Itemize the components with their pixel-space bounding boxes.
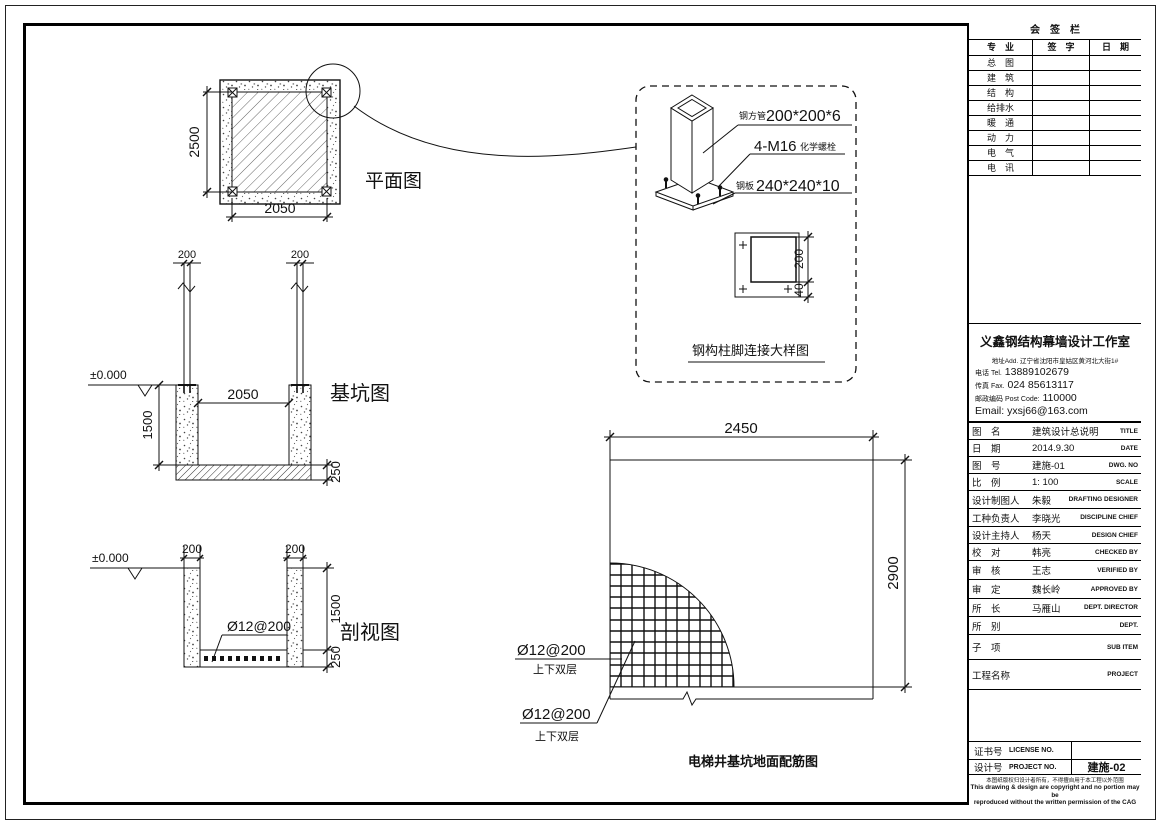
field-label: 审 定 [972,582,1028,596]
plate-plan-dim-200: 200 [792,249,806,269]
pit-level-mark [88,385,176,396]
pit-dim-inner-label: 2050 [227,386,258,402]
rebar-plan: 2450 2900 Ø12@200 上下双层 Ø12@200 上下双层 [515,420,912,769]
field-row-project: 工程名称PROJECT [969,660,1141,690]
sign-cell-date [1090,71,1141,85]
field-label: 日 期 [972,441,1028,455]
field-en: DRAFTING DESIGNER [1069,496,1138,503]
company-postcode: 邮政编码 Post Code: 110000 [975,392,1141,404]
rebar-grid [610,563,734,687]
field-en: DEPT. [1120,622,1138,629]
detail-steel-column-3d [671,95,713,193]
field-value: 李晓光 [1028,511,1080,525]
field-label: 子 项 [972,640,1028,654]
design-no-value: 建施-02 [1071,760,1141,774]
license-value [1071,742,1141,759]
sign-table-header: 专 业 签 字 日 期 [969,40,1141,56]
company-fax-value: 024 85613117 [1007,379,1073,391]
section-dim-slab-label: 250 [328,646,343,668]
sign-row-label: 暖 通 [969,116,1033,130]
svg-text:Ø12@200: Ø12@200 [517,642,586,659]
rebar-grid-arc [610,563,734,687]
field-label: 设计主持人 [972,528,1028,542]
sign-cell-date [1090,56,1141,70]
field-en: PROJECT [1107,671,1138,678]
sign-cell-date [1090,131,1141,145]
plate-plan-dim-40: 40 [792,283,806,297]
sign-off-table: 会 签 栏 专 业 签 字 日 期 总 图 建 筑 结 构 给排水 暖 通 动 … [969,23,1141,176]
copyright-en-line1: This drawing & design are copyright and … [969,784,1141,799]
sign-row: 总 图 [969,56,1141,71]
sign-cell-signature [1033,116,1090,130]
field-label: 图 号 [972,458,1028,472]
pit-dim-depth-label: 1500 [140,411,155,440]
sign-cell-signature [1033,71,1090,85]
field-value: 1: 100 [1028,477,1116,488]
design-no-en: PROJECT NO. [1009,764,1071,771]
field-row-approved: 审 定魏长岭APPROVED BY [969,580,1141,599]
license-en: LICENSE NO. [1009,747,1071,754]
copyright-cn: 本图纸版权归设计者所有，不得擅自用于本工程以外范围 [969,776,1141,784]
field-row-scale: 比 例1: 100SCALE [969,474,1141,491]
rebar-label-1: Ø12@200 上下双层 [515,642,622,676]
sign-cell-signature [1033,101,1090,115]
field-value: 建筑设计总说明 [1028,424,1120,438]
company-fax: 传真 Fax. 024 85613117 [975,379,1141,391]
field-row-dwgno: 图 号建施-01DWG. NO [969,457,1141,474]
sign-row-label: 总 图 [969,56,1033,70]
svg-text:240*240*10: 240*240*10 [756,178,840,195]
sign-row: 动 力 [969,131,1141,146]
sign-row: 电 讯 [969,161,1141,176]
pit-dim-1500 [153,381,176,471]
svg-text:Ø12@200: Ø12@200 [522,706,591,723]
field-label: 设计制图人 [972,493,1028,507]
pit-view: 200 200 ±0.000 2050 1500 [88,249,390,486]
sign-row: 电 气 [969,146,1141,161]
field-en: SUB ITEM [1107,644,1138,651]
company-address: 地址Add. 辽宁省沈阳市皇姑区黄河北大街1# [969,355,1141,365]
field-en: DATE [1121,445,1138,452]
rebar-plan-break-line [610,692,873,705]
field-en: VERIFIED BY [1097,567,1138,574]
section-level-mark [90,568,184,579]
pit-view-title: 基坑图 [330,382,390,405]
section-dim-wall-right: 200 [285,542,305,556]
field-en: DISCIPLINE CHIEF [1080,514,1138,521]
sign-cell-signature [1033,146,1090,160]
field-label: 工程名称 [972,668,1028,682]
sign-cell-signature [1033,86,1090,100]
design-no-label: 设计号 [969,760,1009,774]
rebar-dim-width-label: 2450 [724,420,757,437]
pit-dim-col-left: 200 [178,249,196,261]
plan-view-title: 平面图 [365,171,422,192]
field-value: 魏长岭 [1028,582,1091,596]
field-label: 所 别 [972,619,1028,633]
detail-title: 钢构柱脚连接大样图 [692,343,809,358]
sign-row-label: 电 气 [969,146,1033,160]
field-value: 2014.9.30 [1028,443,1121,454]
plan-dim-width-label: 2050 [264,200,295,216]
field-row-dept-director: 所 长马雁山DEPT. DIRECTOR [969,599,1141,617]
section-rebar-label: Ø12@200 [227,618,291,634]
sign-table-title: 会 签 栏 [969,23,1141,40]
company-email: Email: yxsj66@163.com [975,405,1141,417]
sign-col-date: 日 期 [1090,40,1141,55]
company-info: 义鑫钢结构幕墙设计工作室 地址Add. 辽宁省沈阳市皇姑区黄河北大街1# 电话 … [969,323,1141,423]
svg-text:化学螺栓: 化学螺栓 [800,141,836,152]
sign-cell-date [1090,86,1141,100]
field-value: 建施-01 [1028,458,1109,472]
sign-row-label: 结 构 [969,86,1033,100]
sign-row-label: 给排水 [969,101,1033,115]
sign-cell-date [1090,116,1141,130]
svg-text:钢板: 钢板 [736,180,754,191]
field-label: 所 长 [972,601,1028,615]
field-label: 审 核 [972,563,1028,577]
field-row-date: 日 期2014.9.30DATE [969,440,1141,457]
field-en: DEPT. DIRECTOR [1084,604,1138,611]
sign-cell-date [1090,161,1141,175]
section-view-title: 剖视图 [340,621,400,644]
field-value: 朱毅 [1028,493,1069,507]
sign-row-label: 电 讯 [969,161,1033,175]
company-postcode-value: 110000 [1043,392,1077,404]
sign-row: 暖 通 [969,116,1141,131]
pit-steel-columns [178,263,309,393]
field-label: 图 名 [972,424,1028,438]
section-level-label: ±0.000 [92,551,129,565]
fields-table: 图 名建筑设计总说明TITLE 日 期2014.9.30DATE 图 号建施-0… [969,423,1141,690]
license-row: 证书号 LICENSE NO. [969,742,1141,760]
rebar-dim-height-label: 2900 [885,556,902,589]
field-row-title: 图 名建筑设计总说明TITLE [969,423,1141,440]
field-en: DWG. NO [1109,462,1138,469]
sign-row-label: 建 筑 [969,71,1033,85]
license-label: 证书号 [969,744,1009,758]
company-name: 义鑫钢结构幕墙设计工作室 [969,331,1141,350]
company-email-label: Email: [975,405,1004,417]
sign-cell-signature [1033,56,1090,70]
field-en: DESIGN CHIEF [1092,532,1138,539]
sign-cell-signature [1033,161,1090,175]
section-dim-depth-label: 1500 [328,595,343,624]
field-en: APPROVED BY [1091,586,1138,593]
company-postcode-label: 邮政编码 Post Code: [975,396,1040,403]
sign-cell-date [1090,146,1141,160]
section-view: 200 200 ±0.000 Ø12@200 1500 [90,542,400,673]
detail-dashed-box [636,86,856,382]
field-label: 校 对 [972,545,1028,559]
detail-leader-curve [354,106,636,156]
pit-level-label: ±0.000 [90,368,127,382]
plan-dim-height-label: 2500 [186,126,202,157]
plate-plan-bolts [739,241,792,293]
rebar-plan-title: 电梯井基坑地面配筋图 [688,754,818,769]
company-email-value: yxsj66@163.com [1007,405,1088,417]
svg-text:钢方管: 钢方管 [739,110,766,121]
company-tel-label: 电话 Tel. [975,370,1002,377]
sign-cell-signature [1033,131,1090,145]
field-value: 王志 [1028,563,1097,577]
pit-dim-col-right: 200 [291,249,309,261]
field-value: 韩亮 [1028,545,1095,559]
number-table: 证书号 LICENSE NO. 设计号 PROJECT NO. 建施-02 [969,741,1141,775]
sign-col-specialty: 专 业 [969,40,1033,55]
title-block: 会 签 栏 专 业 签 字 日 期 总 图 建 筑 结 构 给排水 暖 通 动 … [967,23,1141,805]
column-base-detail: 钢方管 200*200*6 4-M16 化学螺栓 钢板 240*240*10 [636,86,856,382]
company-tel-value: 13889102679 [1005,366,1069,378]
field-label: 工种负责人 [972,511,1028,525]
plan-view: 2500 2050 平面图 [186,64,636,222]
sign-col-signature: 签 字 [1033,40,1090,55]
field-row-subitem: 子 项SUB ITEM [969,635,1141,660]
field-value: 马雁山 [1028,601,1084,615]
field-value: 杨天 [1028,528,1092,542]
field-row-dept: 所 别DEPT. [969,617,1141,635]
field-row-design-chief: 设计主持人杨天DESIGN CHIEF [969,527,1141,544]
field-row-discipline-chief: 工种负责人李晓光DISCIPLINE CHIEF [969,509,1141,527]
svg-text:上下双层: 上下双层 [533,663,577,676]
sign-row: 给排水 [969,101,1141,116]
sign-row: 建 筑 [969,71,1141,86]
company-fax-label: 传真 Fax. [975,383,1005,390]
sign-row: 结 构 [969,86,1141,101]
field-label: 比 例 [972,475,1028,489]
company-tel: 电话 Tel. 13889102679 [975,366,1141,378]
field-row-checked: 校 对韩亮CHECKED BY [969,544,1141,561]
svg-text:4-M16: 4-M16 [754,138,797,155]
sign-cell-date [1090,101,1141,115]
section-dim-wall-left: 200 [182,542,202,556]
field-en: SCALE [1116,479,1138,486]
field-en: TITLE [1120,428,1138,435]
detail-label-plate: 钢板 240*240*10 [713,178,852,204]
design-no-row: 设计号 PROJECT NO. 建施-02 [969,760,1141,775]
sign-row-label: 动 力 [969,131,1033,145]
field-row-verified: 审 核王志VERIFIED BY [969,561,1141,580]
drawing-sheet: 2500 2050 平面图 [0,0,1163,827]
field-row-drafter: 设计制图人朱毅DRAFTING DESIGNER [969,491,1141,509]
svg-text:200*200*6: 200*200*6 [766,108,841,125]
copyright-en-line2: reproduced without the written permissio… [969,799,1141,807]
field-en: CHECKED BY [1095,549,1138,556]
copyright-block: 本图纸版权归设计者所有，不得擅自用于本工程以外范围 This drawing &… [969,774,1141,805]
pit-dim-slab-label: 250 [328,461,343,483]
svg-text:上下双层: 上下双层 [535,730,579,743]
